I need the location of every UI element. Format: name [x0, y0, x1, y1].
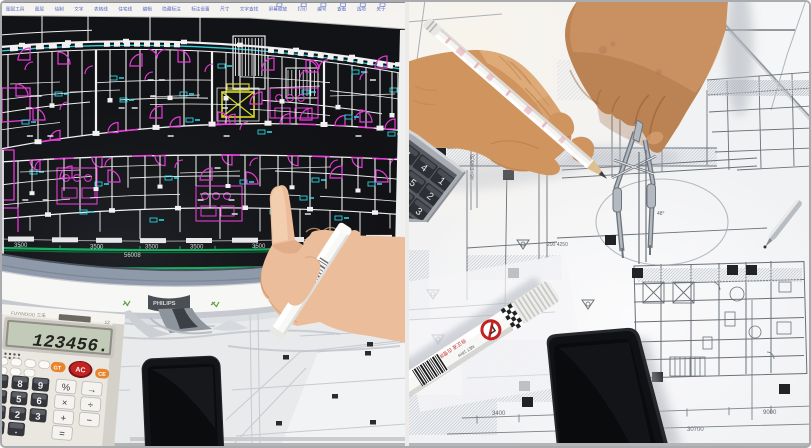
- svg-text:PHILIPS: PHILIPS: [153, 301, 176, 307]
- svg-text:3500: 3500: [90, 244, 104, 250]
- svg-text:文字查找: 文字查找: [240, 6, 259, 13]
- svg-text:3400: 3400: [492, 411, 506, 417]
- svg-text:30700: 30700: [687, 427, 704, 433]
- svg-text:6: 6: [36, 396, 42, 407]
- svg-text:8: 8: [17, 379, 23, 390]
- svg-text:3500: 3500: [252, 244, 266, 250]
- svg-text:3500: 3500: [145, 245, 159, 251]
- svg-text:3500: 3500: [14, 243, 28, 249]
- svg-text:9000: 9000: [763, 410, 777, 416]
- svg-text:56008: 56008: [124, 253, 141, 259]
- svg-text:CE: CE: [98, 371, 106, 378]
- svg-text:9: 9: [37, 380, 43, 391]
- svg-text:÷: ÷: [87, 400, 93, 411]
- svg-text:2: 2: [14, 410, 20, 421]
- svg-text:绘制: 绘制: [55, 6, 65, 13]
- svg-text:3: 3: [35, 411, 41, 422]
- svg-text:×: ×: [61, 398, 67, 409]
- svg-text:尺寸: 尺寸: [220, 6, 230, 13]
- svg-text:→: →: [87, 384, 97, 396]
- svg-text:标注设置: 标注设置: [191, 6, 210, 13]
- svg-text:48°: 48°: [657, 211, 665, 217]
- svg-text:文字: 文字: [74, 6, 84, 13]
- svg-text:3500: 3500: [190, 245, 204, 251]
- svg-text:%: %: [61, 382, 71, 394]
- svg-text:200 4250: 200 4250: [547, 242, 568, 248]
- svg-text:GT: GT: [53, 365, 62, 372]
- svg-text:表格线: 表格线: [94, 6, 108, 13]
- svg-text:AC: AC: [75, 367, 86, 375]
- svg-text:隐藏标注: 隐藏标注: [162, 6, 181, 13]
- svg-text:编辑: 编辑: [143, 6, 153, 13]
- svg-text:住宅线: 住宅线: [118, 6, 132, 12]
